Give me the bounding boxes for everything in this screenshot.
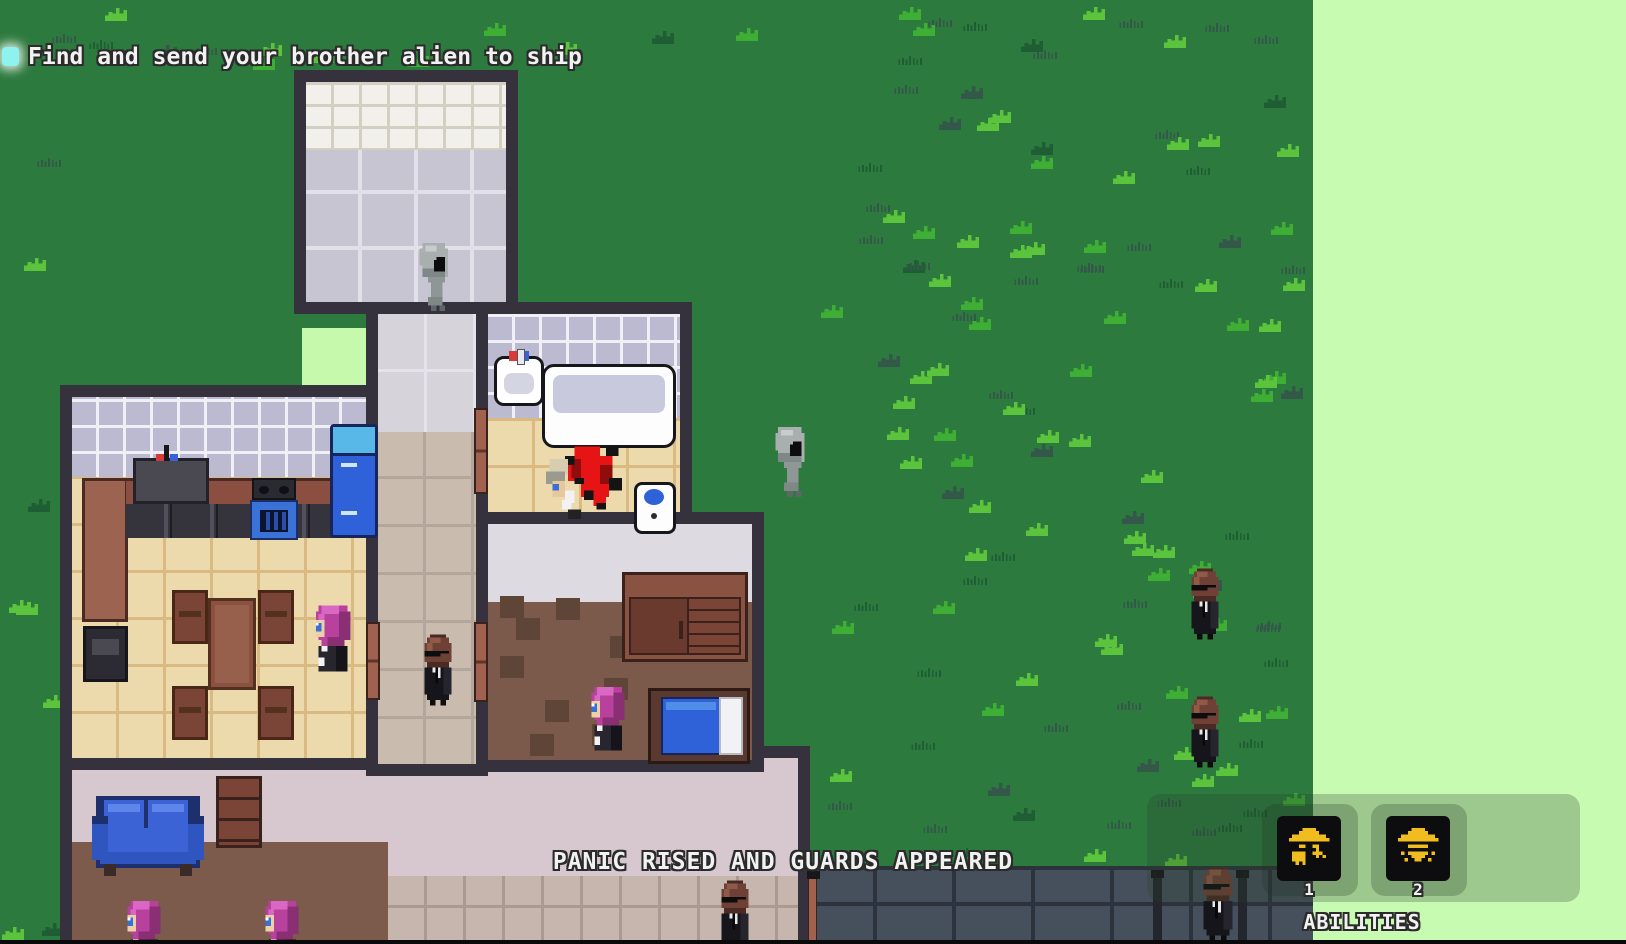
grass-tuft [1101, 642, 1123, 655]
grass-tuft [887, 427, 909, 440]
bathroom-sink [494, 356, 544, 406]
floor-patch [545, 700, 569, 722]
grass-tuft [969, 500, 991, 513]
grass-tuft [1127, 242, 1153, 251]
grass-tuft [1014, 276, 1040, 285]
grass-tuft [1010, 221, 1032, 234]
chair [172, 686, 208, 740]
grass-tuft [652, 31, 674, 44]
grass-tuft [858, 163, 884, 172]
quest-tracker: Find and send your brother alien to ship [2, 44, 582, 70]
grass-tuft [910, 371, 932, 384]
grass-tuft [898, 56, 924, 65]
corridor-upper-tiles [378, 302, 476, 432]
grass-tuft [830, 769, 852, 782]
maid-living-1[interactable] [122, 896, 166, 944]
grass-tuft [1069, 434, 1091, 447]
grass-tuft [878, 354, 900, 367]
grass-tuft [832, 621, 854, 634]
ability-hotkey-1: 1 [1277, 880, 1341, 899]
corpse-bloodied [543, 440, 625, 522]
screen-bottom-edge [0, 940, 1626, 944]
chair [258, 686, 294, 740]
grass-tuft [1205, 23, 1231, 32]
toilet [634, 482, 676, 534]
grass-tuft [1251, 389, 1273, 402]
grass-tuft [1037, 430, 1059, 443]
grass-tuft [1239, 739, 1265, 748]
floor-patch [516, 618, 540, 640]
game-screen[interactable]: Find and send your brother alien to ship… [0, 0, 1626, 944]
grass-tuft [105, 8, 127, 21]
bedroom-door [474, 622, 488, 702]
grass-tuft [866, 203, 892, 212]
grass-tuft [854, 602, 880, 611]
grass-tuft [1016, 673, 1038, 686]
grass-tuft [1132, 543, 1154, 556]
grass-tuft [1104, 311, 1126, 324]
bathtub [542, 364, 676, 448]
grass-tuft [1198, 134, 1220, 147]
grass-tuft [28, 499, 50, 512]
grass-tuft [991, 552, 1017, 561]
grass-tuft [1084, 240, 1106, 253]
guard-field-1[interactable] [1186, 566, 1224, 642]
grass-tuft [1239, 709, 1261, 722]
bed-pillow [719, 697, 743, 755]
grass-tuft [52, 34, 78, 43]
dining-table [208, 598, 256, 690]
dresser [216, 776, 262, 848]
kitchen-sink [133, 458, 209, 504]
grass-tuft [1137, 759, 1159, 772]
grass-tuft [1227, 318, 1249, 331]
grass-tuft [1148, 568, 1170, 581]
grass-tuft [1003, 402, 1025, 415]
maid-bedroom[interactable] [586, 682, 630, 758]
kitchen-door [366, 622, 380, 700]
kitchen-appliance [83, 626, 128, 682]
grass-tuft [951, 454, 973, 467]
stove-top [252, 478, 296, 500]
grass-tuft [2, 927, 24, 940]
guard-field-2[interactable] [1186, 694, 1224, 770]
grass-tuft [933, 601, 955, 614]
oven [250, 500, 298, 540]
grass-tuft [1033, 50, 1059, 59]
maid-living-2[interactable] [260, 896, 304, 944]
bed [648, 688, 750, 764]
grass-tuft [1281, 386, 1303, 399]
grass-tuft [821, 305, 843, 318]
grass-tuft [1186, 166, 1212, 175]
grass-tuft [913, 226, 935, 239]
grass-tuft [899, 7, 921, 20]
grass-tuft [965, 548, 987, 561]
grass-tuft [1113, 171, 1135, 184]
floor-patch [556, 598, 580, 620]
floor-patch [500, 656, 524, 678]
event-banner-text: PANIC RISED AND GUARDS APPEARED [533, 849, 1033, 875]
grass-tuft [893, 396, 915, 409]
grass-tuft [1254, 35, 1280, 44]
grass-tuft [982, 703, 1004, 716]
abilities-title: ABILITIES [1262, 910, 1462, 934]
grass-tuft [1124, 531, 1146, 544]
ufo-beam-icon [1391, 821, 1445, 875]
grass-tuft [1153, 545, 1175, 558]
floor-patch [530, 734, 554, 756]
chair [258, 590, 294, 644]
grass-tuft [1264, 658, 1290, 667]
bed-blanket [661, 697, 721, 755]
maid-kitchen[interactable] [310, 602, 356, 678]
grass-tuft [1283, 278, 1305, 291]
grass-tuft [900, 456, 922, 469]
grass-tuft [1255, 375, 1277, 388]
grass-tuft [977, 118, 999, 131]
grass-tuft [957, 235, 979, 248]
brother-alien[interactable] [406, 240, 456, 314]
fridge [330, 424, 378, 538]
grass-tuft [1281, 265, 1307, 274]
guard-corridor[interactable] [419, 632, 457, 708]
grass-tuft [906, 261, 932, 270]
grass-tuft [1195, 279, 1217, 292]
grass-tuft [1117, 701, 1143, 710]
chair [172, 590, 208, 644]
ability-slot-2[interactable] [1386, 816, 1450, 881]
kitchen-counter [82, 478, 128, 622]
grass-tuft [1259, 319, 1281, 332]
floor-patch [500, 596, 524, 618]
wardrobe [622, 572, 748, 662]
ability-slot-1[interactable] [1277, 816, 1341, 881]
grass-tuft [988, 783, 1010, 796]
grass-tuft [934, 428, 956, 441]
grass-tuft [828, 801, 854, 810]
kitchen-backsplash [72, 397, 366, 477]
grass-tuft [894, 85, 920, 94]
ability-hotkey-2: 2 [1386, 880, 1450, 899]
grass-tuft [961, 297, 983, 310]
alien-outdoor[interactable] [762, 424, 812, 500]
grass-tuft [1107, 820, 1133, 829]
grass-tuft [1277, 144, 1299, 157]
grass-tuft [859, 235, 885, 244]
grass-tuft [969, 317, 991, 330]
grass-tuft [1044, 723, 1070, 732]
grass-tuft [963, 22, 989, 31]
grass-tuft [1219, 235, 1241, 248]
grass-tuft [963, 576, 989, 585]
grass-tuft [1164, 35, 1186, 48]
grass-tuft [942, 486, 964, 499]
grass-tuft [917, 668, 943, 677]
fence-post [808, 870, 817, 944]
grass-tuft [9, 600, 31, 613]
grass-tuft [1159, 279, 1185, 288]
grass-tuft [1083, 7, 1105, 20]
grass-tuft [1031, 156, 1053, 169]
sofa [92, 786, 204, 878]
grass-tuft [911, 741, 937, 750]
grass-tuft [923, 824, 949, 833]
grass-tuft [1123, 599, 1149, 608]
grass-tuft [1077, 263, 1103, 272]
grass-tuft [989, 390, 1015, 399]
grass-tuft [1122, 511, 1144, 524]
ufo-abduct-icon [1282, 821, 1336, 875]
grass-tuft [1266, 706, 1288, 719]
grass-tuft [1256, 623, 1282, 632]
grass-tuft [24, 258, 46, 271]
grass-tuft [484, 23, 506, 36]
grass-tuft [1023, 242, 1045, 255]
grass-tuft [736, 28, 758, 41]
grass-tuft [913, 23, 935, 36]
grass-tuft [1271, 222, 1293, 235]
grass-tuft [1141, 470, 1163, 483]
grass-tuft [1026, 523, 1048, 536]
grass-tuft [929, 274, 951, 287]
grass-tuft [961, 86, 983, 99]
objective-text: Find and send your brother alien to ship [28, 44, 582, 70]
grass-tuft [1031, 444, 1053, 457]
grass-tuft [1084, 849, 1106, 862]
grass-tuft [1167, 137, 1189, 150]
grass-tuft [37, 158, 63, 167]
grass-tuft [1119, 19, 1145, 28]
grass-tuft [1166, 686, 1188, 699]
grass-tuft [1225, 531, 1251, 540]
bathroom-door [474, 408, 488, 494]
grass-tuft [1192, 774, 1214, 787]
guard-patio[interactable] [716, 878, 754, 944]
grass-tuft [1070, 364, 1092, 377]
abilities-panel [1147, 794, 1580, 902]
grass-tuft [1264, 95, 1286, 108]
objective-checkbox-icon [2, 47, 19, 66]
grass-tuft [1031, 142, 1053, 155]
grass-tuft [1013, 808, 1035, 821]
grass-tuft [939, 117, 961, 130]
